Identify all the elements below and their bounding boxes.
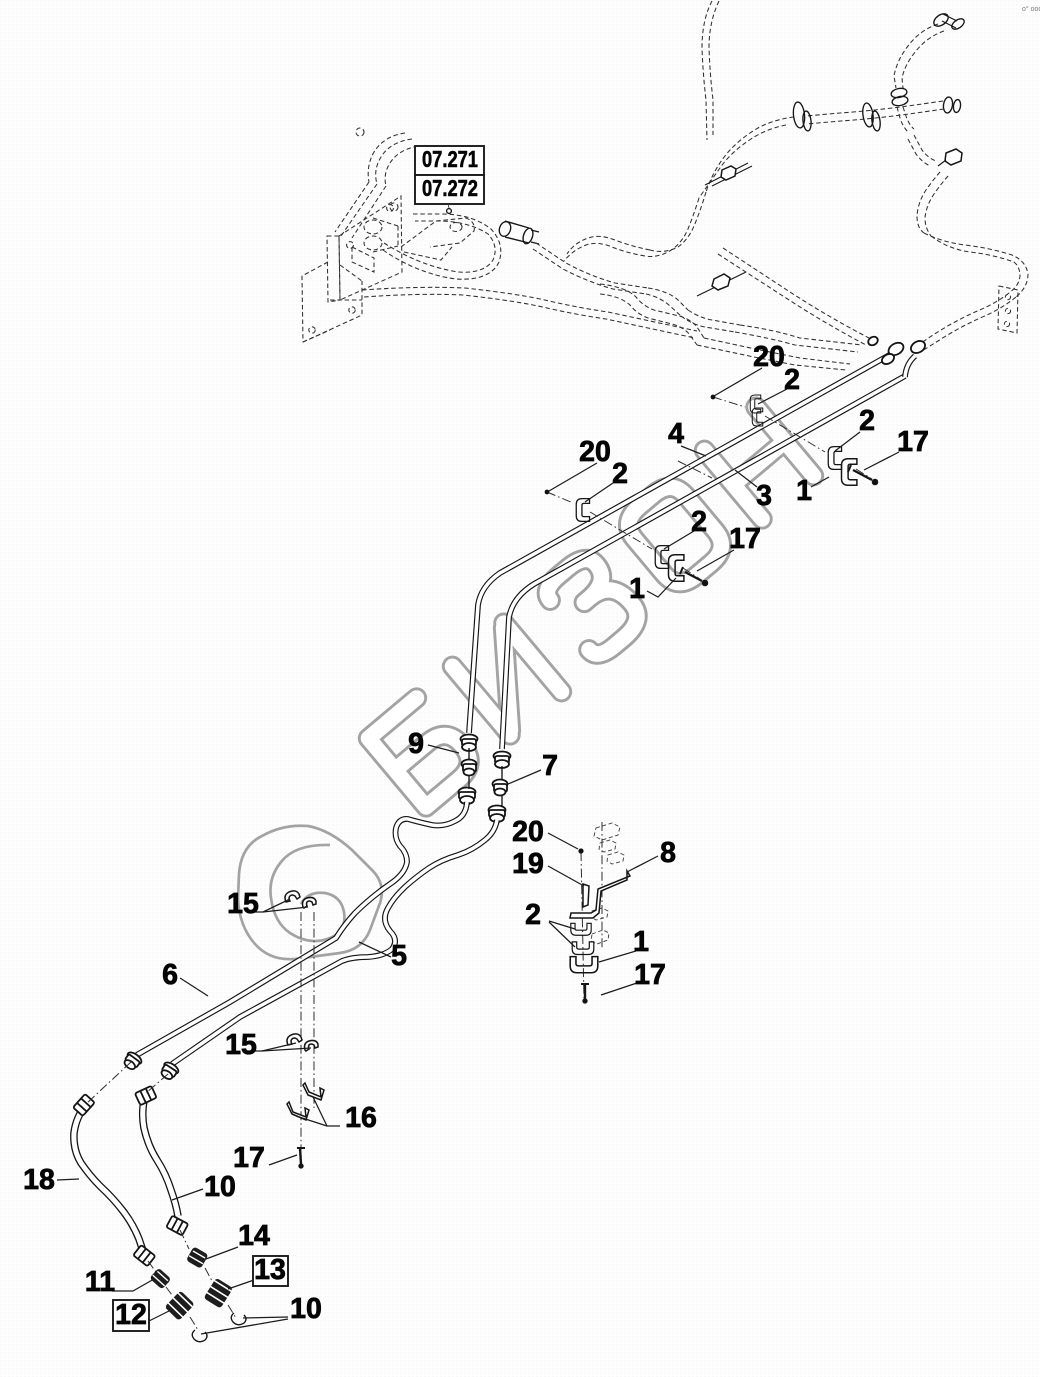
svg-text:2: 2 — [784, 364, 800, 396]
svg-text:3: 3 — [756, 480, 772, 512]
svg-text:18: 18 — [23, 1164, 55, 1196]
svg-text:14: 14 — [238, 1220, 270, 1252]
svg-text:17: 17 — [729, 523, 761, 555]
svg-text:1: 1 — [796, 475, 812, 507]
svg-text:17: 17 — [897, 426, 929, 458]
svg-text:17: 17 — [634, 959, 666, 991]
svg-text:15: 15 — [225, 1029, 257, 1061]
svg-text:20: 20 — [753, 341, 785, 373]
svg-text:15: 15 — [227, 888, 259, 920]
svg-text:16: 16 — [345, 1102, 377, 1134]
svg-text:2: 2 — [859, 405, 875, 437]
svg-text:10: 10 — [290, 1293, 322, 1325]
svg-text:20: 20 — [512, 816, 544, 848]
svg-text:8: 8 — [660, 837, 676, 869]
svg-text:12: 12 — [115, 1299, 147, 1331]
svg-text:o° ooo: o° ooo — [1022, 5, 1040, 13]
svg-text:07.271: 07.271 — [422, 146, 478, 172]
svg-text:20: 20 — [579, 436, 611, 468]
svg-text:1: 1 — [629, 573, 645, 605]
svg-text:9: 9 — [408, 728, 424, 760]
svg-text:11: 11 — [85, 1266, 115, 1298]
svg-text:5: 5 — [391, 940, 407, 972]
svg-text:17: 17 — [233, 1142, 265, 1174]
svg-text:4: 4 — [668, 418, 684, 450]
svg-text:19: 19 — [512, 848, 544, 880]
svg-text:1: 1 — [633, 926, 649, 958]
svg-text:10: 10 — [204, 1171, 236, 1203]
svg-text:7: 7 — [542, 750, 558, 782]
svg-text:2: 2 — [691, 506, 707, 538]
svg-text:2: 2 — [525, 899, 541, 931]
svg-text:6: 6 — [162, 959, 178, 991]
svg-text:2: 2 — [612, 458, 628, 490]
svg-text:07.272: 07.272 — [422, 175, 478, 201]
svg-text:13: 13 — [254, 1254, 286, 1286]
